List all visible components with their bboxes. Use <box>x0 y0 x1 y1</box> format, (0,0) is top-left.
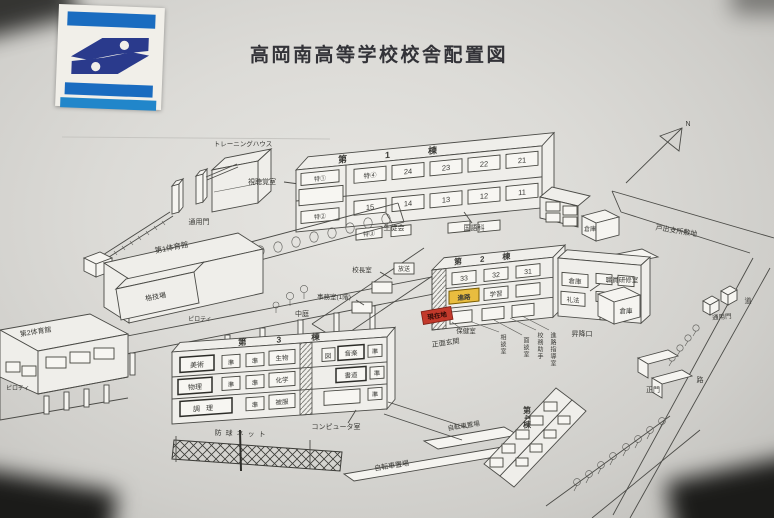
side-gate-west-label: 通用門 <box>189 217 210 226</box>
main-entrance-label: 正面玄関 <box>431 336 460 349</box>
room-label: 12 <box>480 191 488 201</box>
room-label: 22 <box>480 159 488 169</box>
room-label: 14 <box>404 199 412 209</box>
north-arrow: N <box>626 121 691 183</box>
room-label: 21 <box>518 155 526 165</box>
tree-row-east <box>669 325 699 366</box>
storage-cube-north: 倉庫 <box>582 210 619 241</box>
walkway-post <box>130 353 135 375</box>
road-label: 道 <box>745 296 752 305</box>
building-1: 第1棟 特① 特② 特④ 24 23 22 21 15 14 13 12 <box>296 133 554 250</box>
room-box <box>372 282 392 293</box>
career-guidance-label: 進路指導室 <box>549 331 556 367</box>
board-crease <box>62 137 330 139</box>
computer-room-label: コンピュータ室 <box>312 422 361 431</box>
tree-icon <box>300 285 307 299</box>
piloti-b-label: ピロティ <box>6 385 30 392</box>
training-house: トレーニングハウス <box>212 139 272 212</box>
av-room-callout: 視聴覚室 <box>248 177 303 187</box>
room-label: 図 <box>325 352 331 360</box>
room-label: 33 <box>460 275 468 283</box>
bicycle-mid-label: 自転車置場 <box>447 418 481 432</box>
tree-icon <box>685 335 691 346</box>
tree-row-southeast <box>546 416 700 518</box>
school-assistant-label: 校務助手 <box>536 331 543 360</box>
campus-map-photo: 高岡南高等学校校舎配置図 N 戸出支所敷地 自転車置場 <box>0 0 774 518</box>
tree-icon <box>677 345 683 356</box>
ball-net-label: 防球ネット <box>214 428 269 439</box>
counseling-label: 相談室 <box>499 333 506 355</box>
toide-site-boundary: 戸出支所敷地 <box>612 191 774 253</box>
piloti-post <box>104 385 109 403</box>
ball-net-fence: 防球ネット <box>172 428 342 471</box>
piloti-post <box>44 396 49 414</box>
principal-label: 校長室 <box>352 265 372 274</box>
toide-site-label: 戸出支所敷地 <box>655 223 698 238</box>
storage-cube-north-label: 倉庫 <box>584 225 596 233</box>
av-room-label: 視聴覚室 <box>248 177 276 186</box>
interview-label: 面談室 <box>522 337 529 358</box>
stairwell <box>300 342 312 415</box>
building3-side <box>387 327 395 409</box>
training-house-label: トレーニングハウス <box>214 139 273 148</box>
bicycle-shed-mid: 自転車置場 <box>384 402 518 449</box>
room-label: 23 <box>442 163 450 173</box>
piloti-post <box>84 389 89 407</box>
computer-room-box <box>324 389 360 406</box>
admin-wing: 放送 校長室 事務室(1階) <box>312 248 450 340</box>
tree-icon <box>693 325 699 336</box>
office-label: 事務室(1階) <box>317 292 351 301</box>
room-label: 11 <box>518 187 526 197</box>
main-gate: 正門 <box>638 350 692 398</box>
broadcast-label: 放送 <box>398 265 410 273</box>
storage-cube-east: 倉庫 <box>598 287 640 324</box>
room-label: 24 <box>404 167 412 177</box>
piloti-post <box>64 392 69 410</box>
room-label: 13 <box>442 195 450 205</box>
entrance-hall-label: 昇降口 <box>572 329 593 338</box>
gym-2: 第2体育館 ピロティ <box>0 314 128 420</box>
main-gate-label: 正門 <box>646 386 660 394</box>
courtyard-label: 中庭 <box>295 309 309 318</box>
storage-cube-east-label: 倉庫 <box>620 306 634 315</box>
japanese-dept-label: 国語科 <box>464 223 485 232</box>
building-3: 第3棟 美術 準 準 生物 物理 準 準 化学 調理 準 被服 <box>172 326 395 424</box>
road-label: 路 <box>697 375 704 384</box>
staff-training-label: 職員研修室 <box>606 275 639 284</box>
room-label: 32 <box>492 272 500 280</box>
north-label: N <box>685 121 690 128</box>
annex-side <box>641 256 650 324</box>
room-label: 31 <box>524 269 532 277</box>
side-gate-east: 通用門 <box>703 286 737 322</box>
building4-label: 第4棟 <box>522 405 532 429</box>
nurse-label: 保健室 <box>456 326 476 335</box>
